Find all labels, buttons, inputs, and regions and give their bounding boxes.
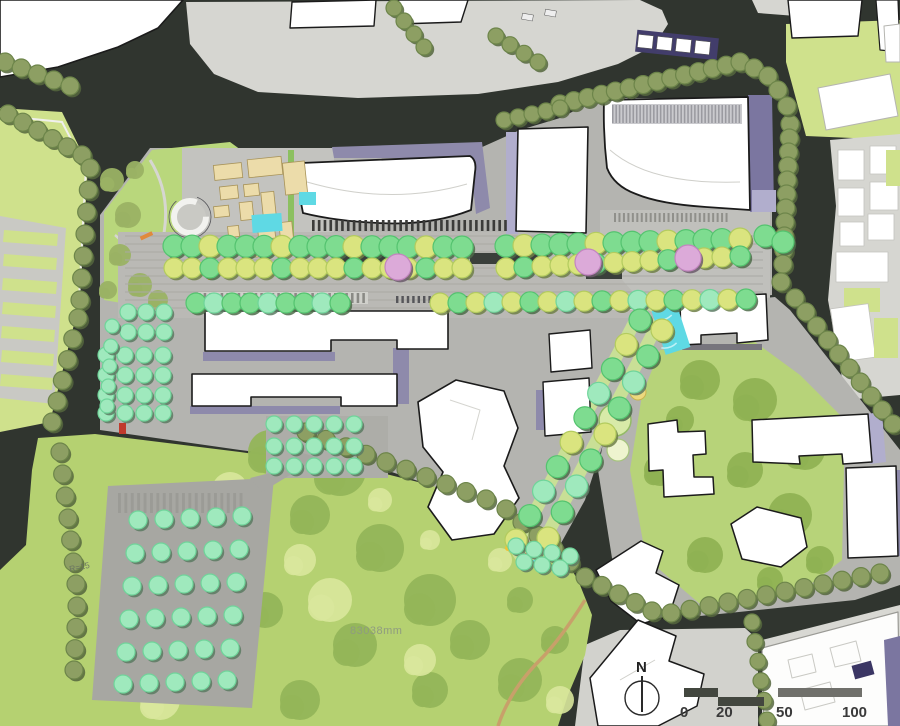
pattern-tick	[396, 296, 398, 303]
tree	[416, 39, 432, 55]
pattern-tick	[118, 493, 121, 513]
tree	[700, 597, 718, 615]
tree	[662, 604, 680, 622]
pattern-tick	[388, 220, 391, 231]
tree	[437, 475, 455, 493]
nw-park-masses	[126, 168, 137, 179]
tree	[615, 333, 637, 355]
tree	[326, 416, 342, 432]
tree	[738, 589, 756, 607]
pattern-tick	[434, 220, 437, 231]
tree	[601, 358, 623, 380]
tree	[640, 251, 660, 271]
park-dark-masses	[290, 510, 314, 534]
tree	[385, 254, 411, 280]
pattern-tick	[412, 296, 414, 303]
tree	[871, 564, 889, 582]
tree	[224, 606, 242, 624]
tree	[772, 231, 794, 253]
tree	[580, 449, 602, 471]
tree	[294, 293, 314, 313]
pattern-tick	[418, 296, 420, 303]
pattern-tick	[656, 105, 658, 123]
park-light-patches	[546, 697, 563, 714]
tree	[430, 293, 450, 313]
pattern-tick	[650, 105, 652, 123]
pattern-tick	[612, 105, 614, 123]
tree	[129, 511, 147, 529]
pattern-tick	[423, 296, 425, 303]
pattern-tick	[401, 296, 403, 303]
tree	[386, 0, 402, 16]
tower-t2-shadow	[536, 390, 544, 430]
tree	[156, 304, 172, 320]
tree	[101, 379, 115, 393]
pattern-tick	[654, 213, 656, 222]
scale-tick-20: 20	[716, 704, 733, 721]
pattern-tick	[627, 213, 629, 222]
tree	[362, 258, 382, 278]
tree	[532, 256, 552, 276]
tree	[221, 639, 239, 657]
tree	[538, 292, 558, 312]
tree	[594, 423, 616, 445]
pattern-tick	[650, 213, 652, 222]
pattern-tick	[428, 220, 431, 231]
tree	[629, 309, 651, 331]
tree	[574, 291, 594, 311]
tree	[346, 438, 362, 454]
pattern-tick	[619, 105, 621, 123]
tree	[67, 618, 85, 636]
tree	[204, 541, 222, 559]
tree	[757, 586, 775, 604]
tree	[406, 26, 422, 42]
tree	[776, 582, 794, 600]
tree	[155, 347, 171, 363]
tree	[78, 203, 96, 221]
tree	[266, 458, 282, 474]
tree	[514, 257, 534, 277]
tree	[664, 290, 684, 310]
tree	[772, 273, 790, 291]
pattern-tick	[698, 105, 700, 123]
pattern-tick	[475, 220, 478, 231]
pattern-tick	[329, 220, 332, 231]
pattern-tick	[645, 213, 647, 222]
building-d1-shadow	[203, 352, 335, 361]
pattern-tick	[407, 296, 409, 303]
courtyard-masses	[806, 557, 823, 574]
tree	[457, 483, 475, 501]
tree	[54, 465, 72, 483]
tree	[62, 531, 80, 549]
tree	[81, 159, 99, 177]
pattern-tick	[643, 105, 645, 123]
tree	[59, 509, 77, 527]
courtyard-masses	[733, 395, 759, 421]
tree	[117, 387, 133, 403]
pattern-tick	[227, 493, 230, 513]
pattern-tick	[458, 220, 461, 231]
pattern-tick	[347, 220, 350, 231]
pattern-tick	[481, 220, 484, 231]
site-plan-screenshot: 83038mm R=15 N 0 20 50 100	[0, 0, 900, 726]
tree	[233, 507, 251, 525]
tree	[140, 674, 158, 692]
tree	[136, 405, 152, 421]
tree	[434, 258, 454, 278]
tree	[538, 103, 554, 119]
tree	[604, 252, 624, 272]
pattern-tick	[359, 220, 362, 231]
park-dark-masses	[412, 686, 434, 708]
pattern-tick	[615, 105, 617, 123]
tree	[530, 54, 546, 70]
pattern-tick	[668, 213, 670, 222]
scale-tick-100: 100	[842, 704, 867, 721]
tree	[123, 577, 141, 595]
tree	[71, 291, 89, 309]
tree	[508, 538, 524, 554]
tree	[182, 258, 202, 278]
pattern-tick	[660, 105, 662, 123]
pattern-tick	[725, 105, 727, 123]
pattern-tick	[144, 493, 147, 513]
pattern-tick	[353, 220, 356, 231]
tree	[330, 293, 350, 313]
park-dark-masses	[404, 594, 435, 625]
tree	[628, 290, 648, 310]
nw-park-masses	[100, 177, 114, 191]
pattern-tick	[685, 213, 687, 222]
tree	[308, 258, 328, 278]
tree	[155, 510, 173, 528]
park-dark-masses	[507, 597, 523, 613]
park-light-patches	[308, 595, 334, 621]
pattern-tick	[717, 213, 719, 222]
tree	[592, 291, 612, 311]
tree	[164, 258, 184, 278]
pattern-tick	[680, 105, 682, 123]
pattern-tick	[382, 220, 385, 231]
building-b	[516, 127, 588, 233]
tree	[218, 671, 236, 689]
tree	[524, 106, 540, 122]
tree	[117, 405, 133, 421]
tree	[286, 458, 302, 474]
tree	[73, 269, 91, 287]
pattern-tick	[699, 213, 701, 222]
tree	[566, 475, 588, 497]
park-light-patches	[368, 497, 382, 511]
pattern-tick	[362, 293, 365, 303]
tree	[759, 712, 775, 726]
tree	[534, 557, 550, 573]
pattern-tick	[726, 213, 728, 222]
tree	[753, 673, 769, 689]
tree	[236, 258, 256, 278]
pattern-tick	[335, 220, 338, 231]
tree	[576, 568, 594, 586]
tree	[166, 673, 184, 691]
park-light-patches	[488, 557, 502, 571]
tree	[556, 291, 576, 311]
pattern-tick	[156, 493, 159, 513]
park-dark-masses	[356, 542, 385, 571]
tree	[795, 579, 813, 597]
tree	[452, 258, 472, 278]
tree	[675, 245, 701, 271]
building-d1	[205, 311, 448, 351]
tree	[306, 458, 322, 474]
pattern-tick	[623, 213, 625, 222]
park-dark-masses	[280, 695, 304, 719]
park-light-patches	[404, 656, 423, 675]
red-marker	[119, 423, 126, 434]
tree	[397, 460, 415, 478]
pattern-tick	[440, 220, 443, 231]
pattern-tick	[504, 220, 507, 231]
building-c-shadow-light	[752, 190, 776, 212]
tree	[750, 653, 766, 669]
scale-tick-0: 0	[680, 704, 688, 721]
pattern-tick	[646, 105, 648, 123]
tree	[651, 319, 673, 341]
tree	[100, 399, 114, 413]
tree	[156, 324, 172, 340]
tree	[488, 28, 504, 44]
tree	[516, 554, 532, 570]
pattern-tick	[653, 105, 655, 123]
tree	[552, 100, 568, 116]
tree	[637, 345, 659, 367]
tree	[114, 675, 132, 693]
pattern-tick	[498, 220, 501, 231]
tree	[198, 607, 216, 625]
north-label: N	[636, 659, 647, 676]
tree	[59, 351, 77, 369]
tree	[344, 258, 364, 278]
tree	[560, 431, 582, 453]
tree	[502, 37, 518, 53]
tree	[105, 319, 119, 333]
tree	[192, 672, 210, 690]
tree	[718, 289, 738, 309]
tree	[451, 236, 473, 258]
pattern-tick	[131, 493, 134, 513]
tree	[254, 258, 274, 278]
tree	[66, 640, 84, 658]
pattern-tick	[728, 105, 730, 123]
tree	[45, 71, 63, 89]
scale-bar-segment-3	[778, 688, 862, 697]
tree	[833, 571, 851, 589]
tree	[622, 252, 642, 272]
tree	[744, 614, 760, 630]
tree	[48, 392, 66, 410]
pattern-tick	[712, 213, 714, 222]
pattern-tick	[469, 220, 472, 231]
tree	[502, 292, 522, 312]
tree	[546, 456, 568, 478]
pattern-tick	[636, 213, 638, 222]
tree	[175, 575, 193, 593]
tree	[186, 293, 206, 313]
pattern-tick	[690, 213, 692, 222]
tree	[496, 258, 516, 278]
tree	[377, 453, 395, 471]
tree	[138, 304, 154, 320]
tree	[552, 560, 568, 576]
tree	[769, 81, 787, 99]
tree	[126, 544, 144, 562]
pattern-tick	[681, 213, 683, 222]
pattern-tick	[376, 220, 379, 231]
pattern-tick	[417, 220, 420, 231]
tree	[227, 573, 245, 591]
tree	[730, 246, 750, 266]
tree	[103, 359, 117, 373]
master-plan-map: 83038mm R=15 N 0 20 50 100	[0, 0, 900, 726]
tree	[466, 293, 486, 313]
tree	[551, 501, 573, 523]
tree	[448, 293, 468, 313]
tree	[574, 407, 596, 429]
tree	[240, 293, 260, 313]
scale-bar-segment-1	[684, 688, 718, 697]
tree	[712, 247, 732, 267]
pattern-tick	[626, 105, 628, 123]
tree	[884, 415, 900, 433]
pattern-tick	[694, 105, 696, 123]
tree	[104, 339, 118, 353]
tree	[682, 290, 702, 310]
pattern-tick	[687, 105, 689, 123]
tree	[138, 324, 154, 340]
nw-park-masses	[99, 288, 110, 299]
tree	[626, 594, 644, 612]
pattern-tick	[676, 213, 678, 222]
pattern-tick	[639, 105, 641, 123]
tree	[519, 505, 541, 527]
tree	[681, 600, 699, 618]
tree	[719, 593, 737, 611]
pattern-tick	[721, 105, 723, 123]
pattern-tick	[670, 105, 672, 123]
pattern-tick	[364, 220, 367, 231]
tree	[814, 575, 832, 593]
tree	[484, 292, 504, 312]
tree	[136, 347, 152, 363]
pattern-tick	[150, 493, 153, 513]
tree	[516, 45, 532, 61]
pattern-tick	[137, 493, 140, 513]
tree	[736, 289, 756, 309]
tree	[29, 65, 47, 83]
tree	[643, 602, 661, 620]
pattern-tick	[708, 105, 710, 123]
tree	[610, 585, 628, 603]
tree	[117, 367, 133, 383]
pattern-tick	[715, 105, 717, 123]
tree	[276, 293, 296, 313]
tree	[143, 642, 161, 660]
tree	[608, 397, 630, 419]
parcel-building-green-2	[884, 24, 900, 62]
building-a	[299, 156, 475, 223]
tree	[65, 661, 83, 679]
tree	[290, 258, 310, 278]
pattern-tick	[739, 105, 741, 123]
tree	[396, 13, 412, 29]
context-building-topright	[788, 0, 862, 38]
pattern-tick	[312, 220, 315, 231]
tree	[520, 292, 540, 312]
tree	[272, 258, 292, 278]
courtyard-masses	[727, 466, 749, 488]
tree	[774, 255, 792, 273]
tree	[201, 574, 219, 592]
pattern-tick	[394, 220, 397, 231]
pattern-tick	[176, 493, 179, 513]
tree	[346, 458, 362, 474]
park-light-patches	[420, 538, 432, 550]
tree	[120, 610, 138, 628]
tree	[56, 487, 74, 505]
pattern-tick	[684, 105, 686, 123]
tree	[155, 405, 171, 421]
tree	[312, 293, 332, 313]
tree	[136, 387, 152, 403]
tree	[155, 367, 171, 383]
pattern-tick	[423, 220, 426, 231]
pattern-tick	[691, 105, 693, 123]
tree	[778, 97, 796, 115]
tree	[51, 443, 69, 461]
context-building-top-1	[290, 0, 376, 28]
tree	[149, 576, 167, 594]
tree	[700, 289, 720, 309]
water-pool-1	[251, 213, 282, 233]
tree	[575, 249, 601, 275]
tree	[155, 387, 171, 403]
tree	[306, 416, 322, 432]
park-dark-masses	[450, 635, 474, 659]
tree	[646, 290, 666, 310]
circular-pavilion-ring	[174, 201, 206, 233]
pattern-tick	[411, 220, 414, 231]
tree	[286, 416, 302, 432]
tree	[61, 77, 79, 95]
tree	[588, 382, 610, 404]
pattern-tick	[169, 493, 172, 513]
pattern-tick	[633, 105, 635, 123]
pattern-tick	[632, 213, 634, 222]
pattern-tick	[711, 105, 713, 123]
tree	[195, 640, 213, 658]
tree	[477, 490, 495, 508]
pattern-tick	[636, 105, 638, 123]
courtyard-masses	[687, 551, 709, 573]
tree	[152, 543, 170, 561]
tree	[550, 255, 570, 275]
tree	[12, 59, 30, 77]
area-dimension-label: 83038mm	[350, 625, 402, 637]
tree	[533, 480, 555, 502]
pattern-tick	[667, 105, 669, 123]
pattern-tick	[677, 105, 679, 123]
